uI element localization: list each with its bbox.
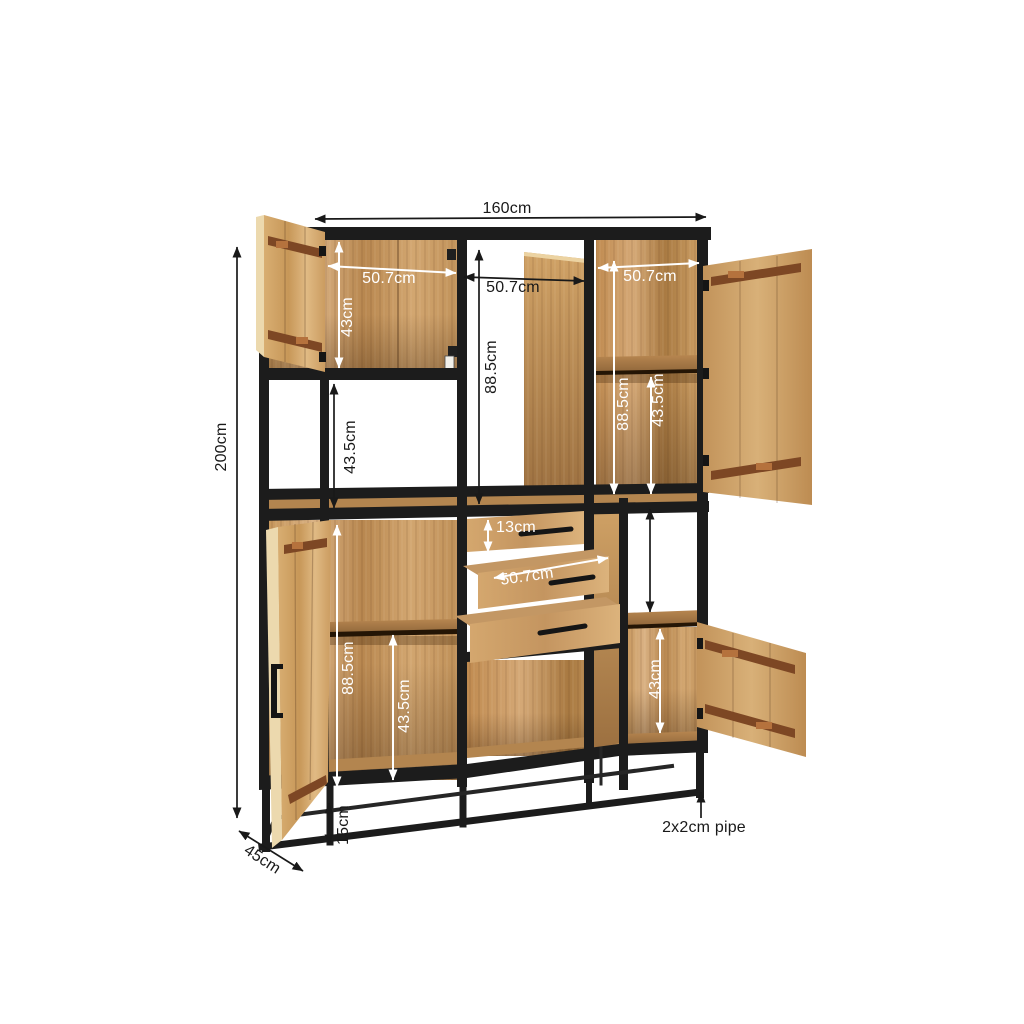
dim-overall-width-label: 160cm bbox=[482, 200, 531, 218]
dim-overall-height-label: 200cm bbox=[213, 422, 231, 471]
dim-top-right-shelf-label: 43.5cm bbox=[650, 373, 668, 427]
dim-top-middle-width-label: 50.7cm bbox=[486, 279, 540, 297]
dim-top-left-height-label: 43cm bbox=[339, 297, 357, 337]
dim-bottom-left-height-label: 88.5cm bbox=[340, 641, 358, 695]
top-left-door bbox=[256, 215, 326, 372]
bottom-right-door bbox=[697, 622, 806, 757]
dim-bottom-left-shelf-label: 43.5cm bbox=[396, 679, 414, 733]
dim-top-right-width-label: 50.7cm bbox=[623, 268, 677, 286]
bottom-left-door bbox=[266, 520, 331, 848]
dim-middle-left-height-label: 43.5cm bbox=[342, 420, 360, 474]
dim-top-right-height-label: 88.5cm bbox=[615, 377, 633, 431]
top-right-door bbox=[703, 249, 812, 505]
dim-base-height-label: 15cm bbox=[335, 805, 353, 845]
dim-bottom-right-height-label: 43cm bbox=[647, 659, 665, 699]
cabinet-illustration bbox=[0, 0, 1024, 1024]
dim-drawer-height-label: 13cm bbox=[496, 519, 536, 537]
dim-pipe-note-label: 2x2cm pipe bbox=[662, 819, 746, 837]
furniture-dimension-diagram: 160cm 200cm 45cm 50.7cm 43cm 50.7cm 88.5… bbox=[0, 0, 1024, 1024]
dim-top-middle-height-label: 88.5cm bbox=[483, 340, 501, 394]
dim-top-left-width-label: 50.7cm bbox=[362, 270, 416, 288]
